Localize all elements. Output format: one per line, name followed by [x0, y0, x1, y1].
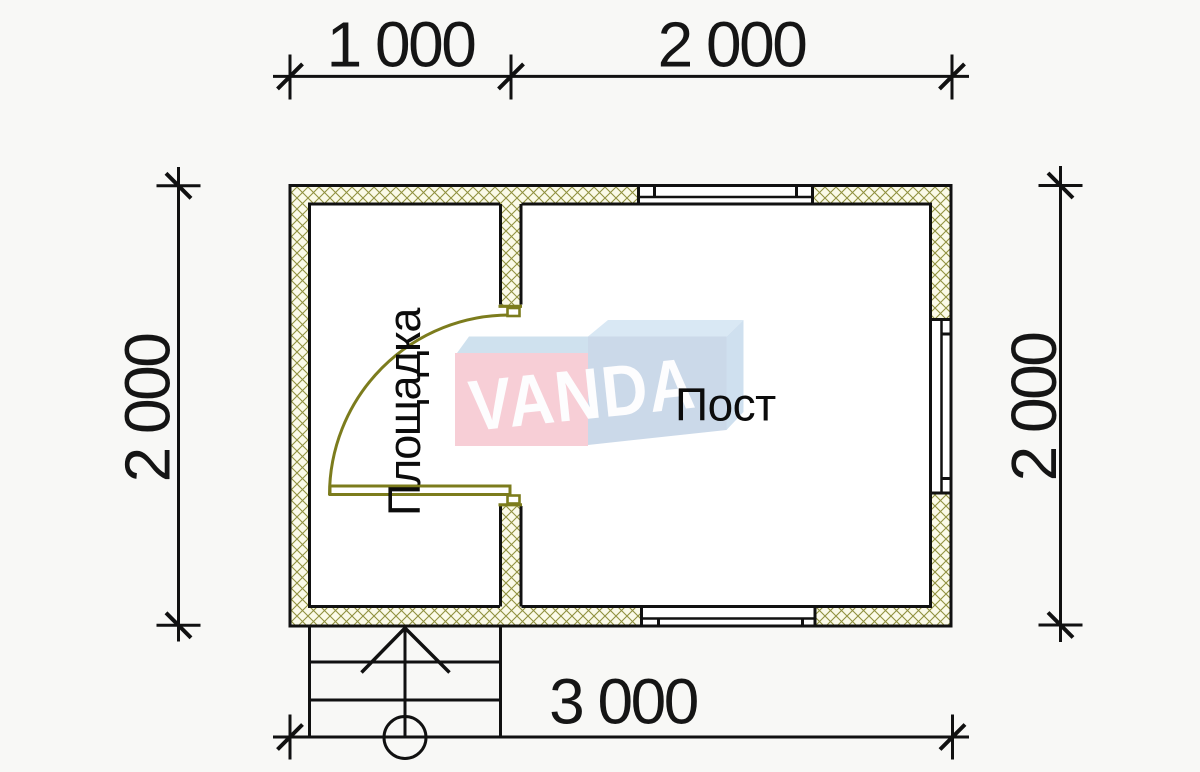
svg-text:2 000: 2 000 — [112, 334, 184, 483]
svg-text:2 000: 2 000 — [998, 333, 1070, 482]
svg-text:Площадка: Площадка — [379, 307, 430, 516]
svg-text:3 000: 3 000 — [549, 666, 698, 738]
svg-text:2 000: 2 000 — [658, 9, 807, 81]
svg-text:Пост: Пост — [675, 379, 776, 431]
svg-text:1 000: 1 000 — [327, 9, 476, 81]
